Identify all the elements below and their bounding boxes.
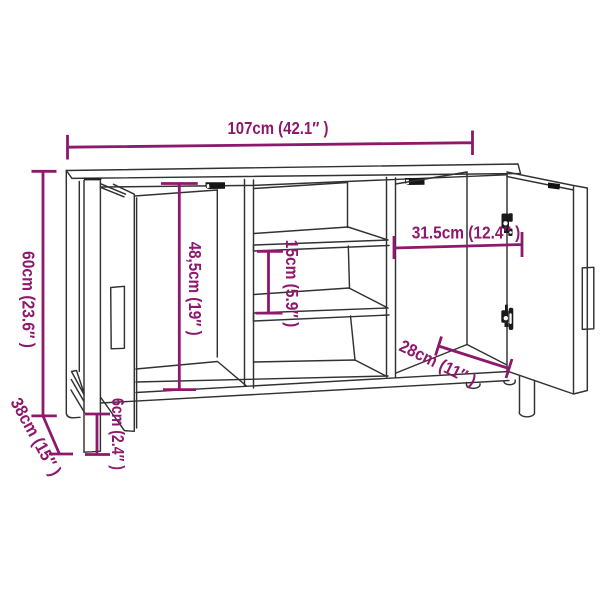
svg-text:31.5cm (12.4″ ): 31.5cm (12.4″ ): [412, 222, 521, 242]
svg-text:48,5cm (19″ ): 48,5cm (19″ ): [185, 242, 205, 336]
svg-text:15cm (5.9″ ): 15cm (5.9″ ): [282, 240, 302, 328]
svg-text:6cm (2.4″ ): 6cm (2.4″ ): [108, 398, 128, 470]
svg-text:60cm (23.6″ ): 60cm (23.6″ ): [19, 251, 39, 348]
svg-text:107cm (42.1″ ): 107cm (42.1″ ): [228, 118, 329, 138]
